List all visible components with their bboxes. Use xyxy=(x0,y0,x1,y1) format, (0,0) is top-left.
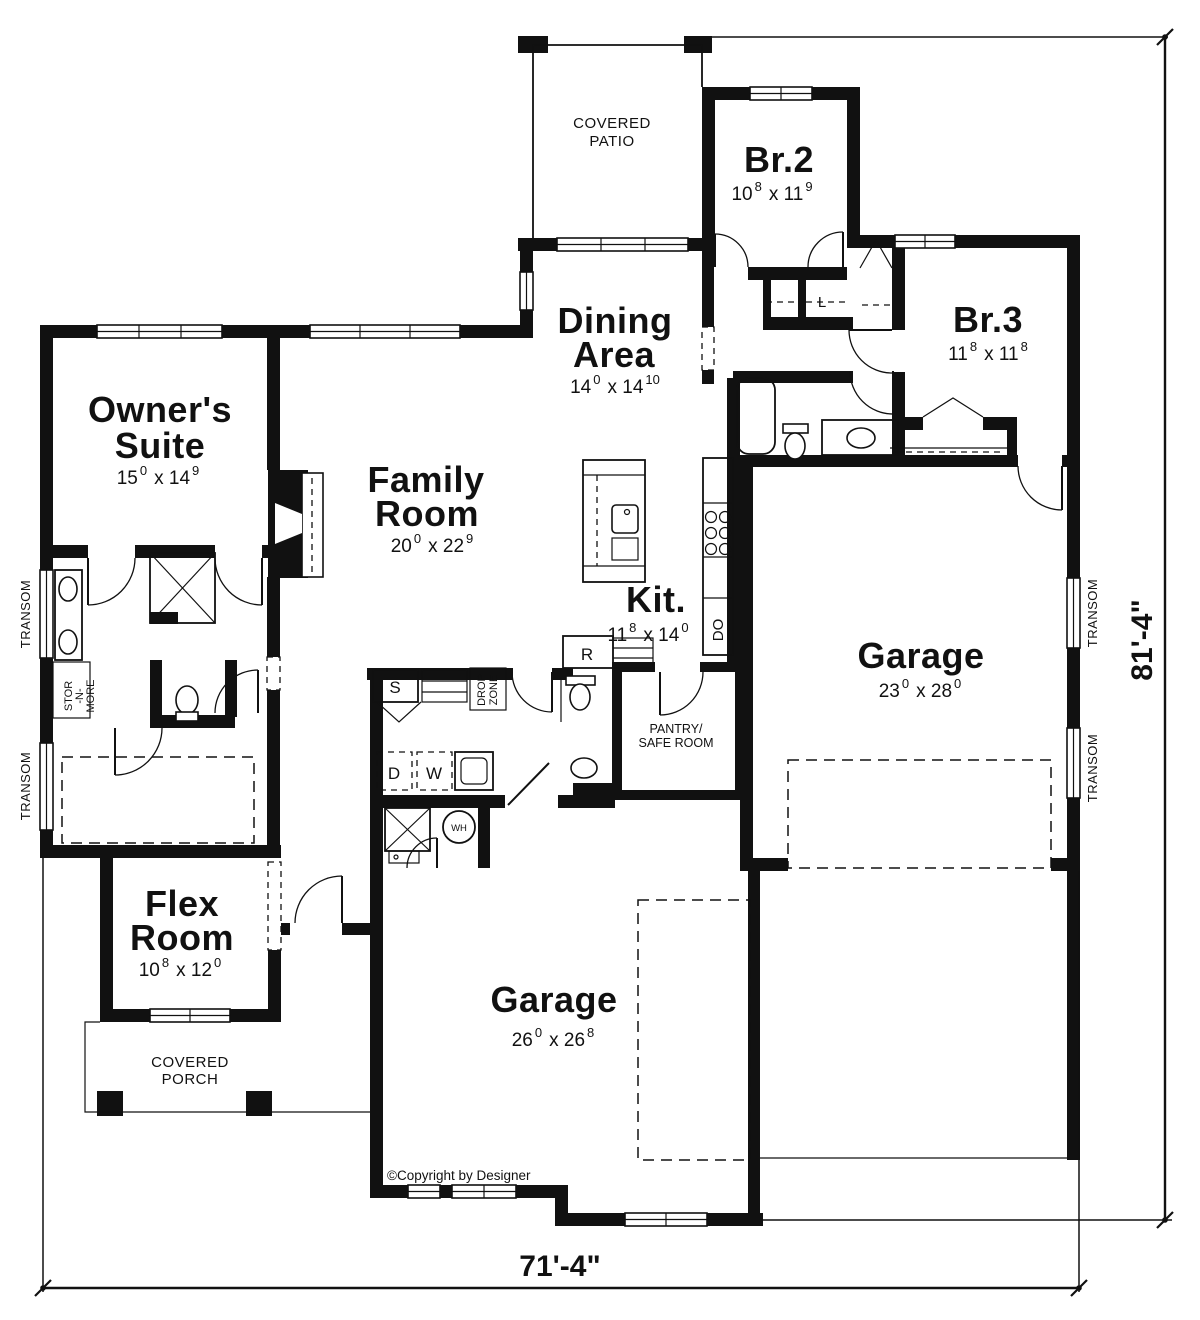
drop-zone-label-2: ZONE xyxy=(488,675,500,706)
island-sink-icon xyxy=(612,505,638,533)
garage-door-bays xyxy=(638,760,1067,1160)
pantry-label: PANTRY/ xyxy=(649,722,703,736)
sink-label: S xyxy=(389,678,400,697)
dining-area-label-2: Area xyxy=(573,334,656,375)
transom-label-left-1: TRANSOM xyxy=(18,580,33,649)
drop-zone-label-1: DROP xyxy=(476,674,488,706)
transom-label-right-2: TRANSOM xyxy=(1085,734,1100,803)
owners-suite-label: Owner's xyxy=(88,389,232,430)
mechanical-fixtures xyxy=(385,808,475,863)
washer-label: W xyxy=(426,764,442,783)
transom-label-right-1: TRANSOM xyxy=(1085,579,1100,648)
floor-plan: Owner's Suite 150x 149 Family Room 200x … xyxy=(0,0,1200,1320)
powder-room-fixtures xyxy=(561,676,597,778)
garage-rear-label: Garage xyxy=(857,635,984,676)
br2-label: Br.2 xyxy=(744,139,814,180)
br3-label: Br.3 xyxy=(953,299,1023,340)
floor-plan-drawing: Owner's Suite 150x 149 Family Room 200x … xyxy=(0,0,1200,1320)
pantry-label-2: SAFE ROOM xyxy=(638,736,713,750)
family-room-dims: 200x 229 xyxy=(391,531,474,557)
dining-area-dims: 140x 1410 xyxy=(570,372,660,398)
copyright-notice: ©Copyright by Designer xyxy=(387,1168,531,1183)
owners-suite-dims: 150x 149 xyxy=(117,463,200,489)
covered-patio-label: COVERED xyxy=(573,115,651,132)
double-oven-label: DO xyxy=(710,619,727,642)
flex-room-label-2: Room xyxy=(130,917,234,958)
garage-rear-dims: 230x 280 xyxy=(879,676,962,702)
tub-icon xyxy=(737,378,775,454)
family-room-label-2: Room xyxy=(375,493,479,534)
kitchen-label: Kit. xyxy=(626,579,686,620)
kitchen-dims: 118x 140 xyxy=(607,620,688,646)
walk-in-closet-shelving xyxy=(62,757,254,843)
room-labels: Owner's Suite 150x 149 Family Room 200x … xyxy=(88,139,1028,1051)
kitchen-island xyxy=(583,460,645,582)
toilet-icon xyxy=(570,684,590,710)
bifold-door xyxy=(923,398,983,417)
garage-front-label: Garage xyxy=(490,979,617,1020)
covered-patio-label-2: PATIO xyxy=(589,133,634,150)
garage-front-dims: 260x 268 xyxy=(512,1025,595,1051)
br3-dims: 118x 118 xyxy=(948,339,1028,365)
sink-icon xyxy=(59,577,77,601)
sink-icon xyxy=(59,630,77,654)
br2-dims: 108x 119 xyxy=(731,179,812,205)
sink-icon xyxy=(847,428,875,448)
stor-label-3: MORE xyxy=(85,680,97,713)
cooktop-icon xyxy=(706,512,731,555)
sink-icon xyxy=(571,758,597,778)
dimension-labels: 71'-4" 81'-4" ©Copyright by Designer xyxy=(387,599,1159,1283)
flex-room-dims: 108x 120 xyxy=(139,955,222,981)
height-dimension: 81'-4" xyxy=(1126,599,1159,680)
covered-porch-label: COVERED xyxy=(151,1054,229,1071)
covered-porch-label-2: PORCH xyxy=(162,1071,219,1088)
width-dimension: 71'-4" xyxy=(519,1250,600,1283)
linen-label: L xyxy=(818,294,826,311)
hall-bath-fixtures xyxy=(737,378,898,459)
toilet-icon xyxy=(785,433,805,459)
owners-suite-label-2: Suite xyxy=(115,425,206,466)
toilet-icon xyxy=(176,686,198,714)
water-heater-label: WH xyxy=(451,823,467,834)
transom-label-left-2: TRANSOM xyxy=(18,752,33,821)
dimension-lines xyxy=(35,29,1173,1296)
refrigerator-label: R xyxy=(581,645,593,664)
dryer-label: D xyxy=(388,764,400,783)
entry-door xyxy=(508,763,549,805)
fixture-labels: TRANSOM TRANSOM TRANSOM TRANSOM STOR -N-… xyxy=(18,294,1100,834)
